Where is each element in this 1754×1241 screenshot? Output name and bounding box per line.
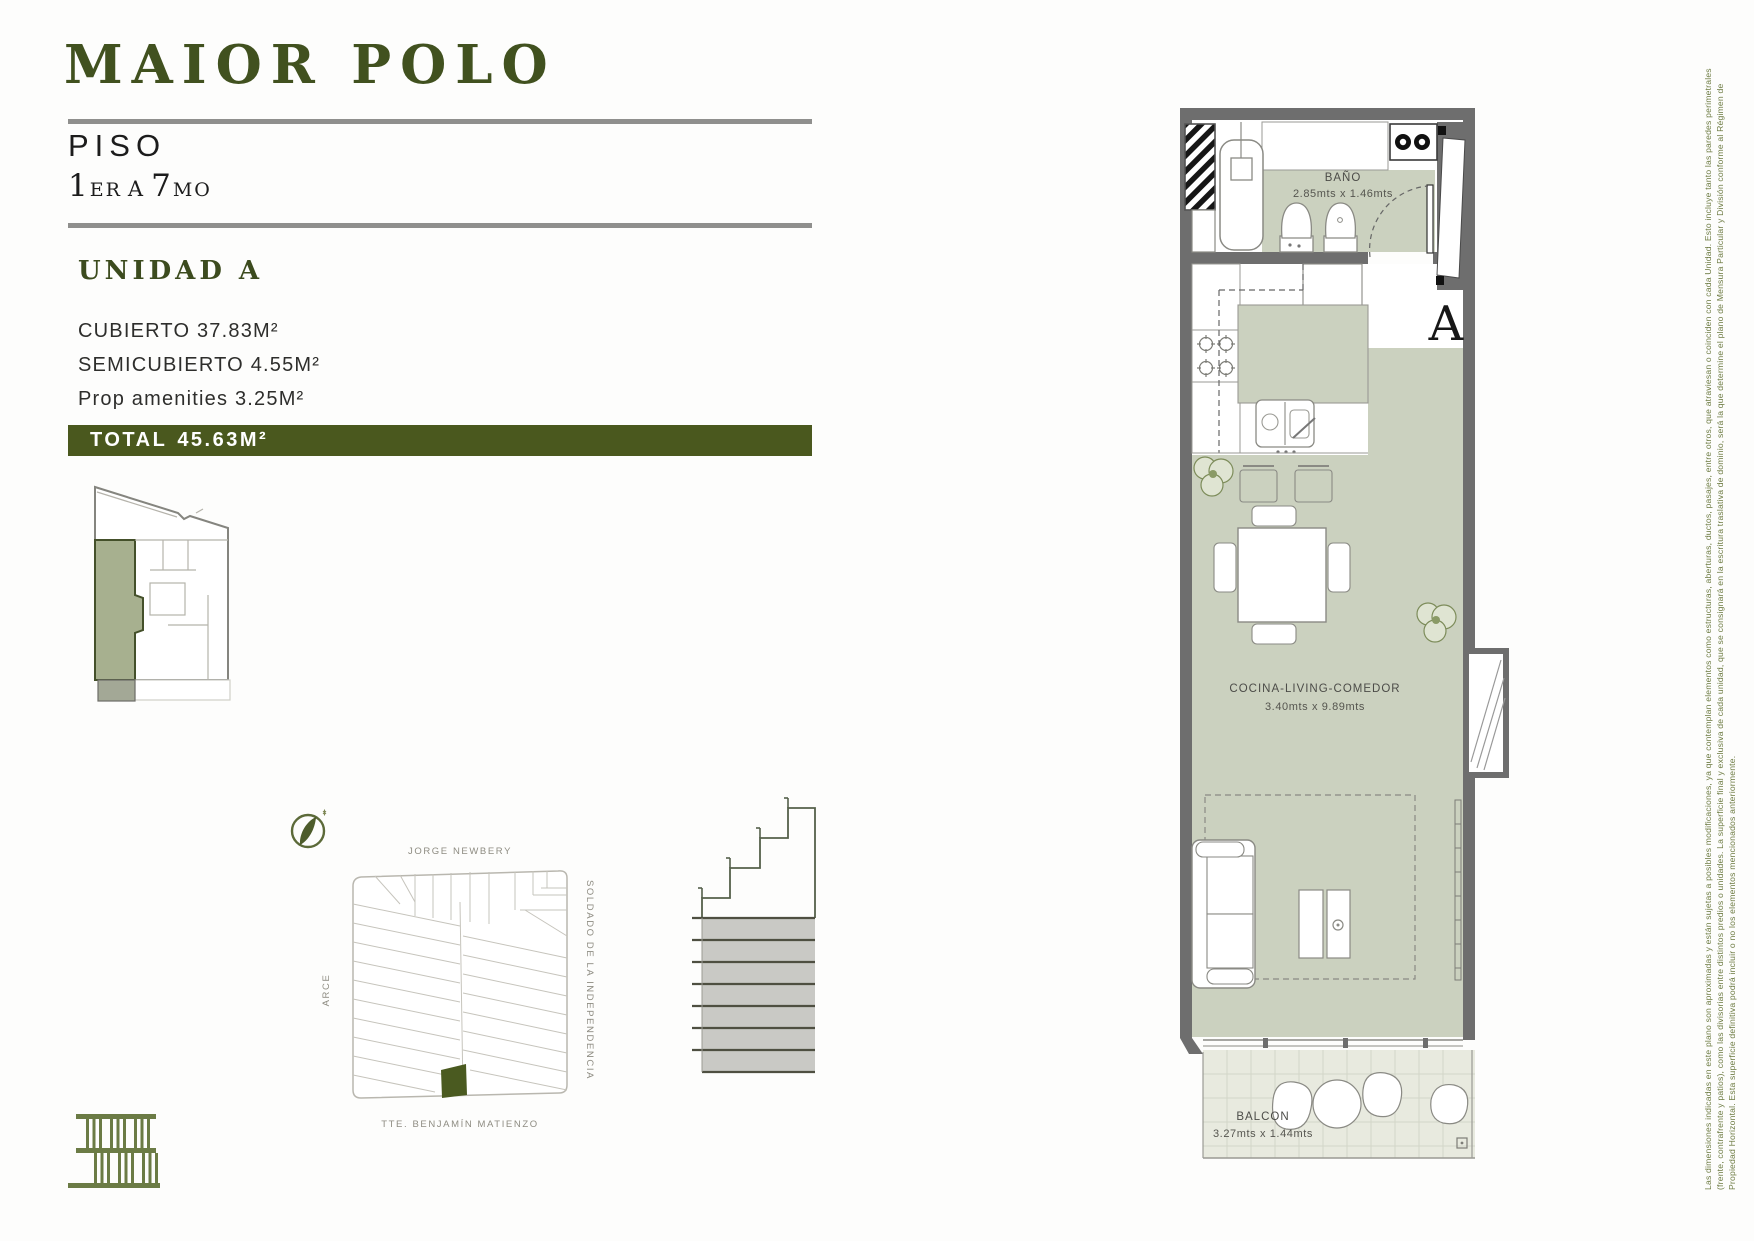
area-label: SEMICUBIERTO: [78, 354, 244, 376]
street-bottom-label: TTE. BENJAMÍN MATIENZO: [381, 1119, 538, 1130]
balcony-label: BALCON: [1236, 1111, 1289, 1123]
kitchen-sink: [1256, 400, 1315, 454]
building-section-diagram: [640, 780, 825, 1080]
legal-disclaimer: Las dimensiones indicadas en este plano …: [1702, 42, 1739, 1190]
area-value: 3.25M²: [235, 388, 304, 410]
wall-left: [1180, 108, 1192, 1038]
toilet: [1280, 203, 1313, 252]
floor-from-number: 1: [68, 168, 90, 204]
key-plan-diagram: [78, 473, 253, 718]
plan-sheet: MAIOR POLO PISO 1ERA7MO UNIDAD A CUBIERT…: [0, 0, 1754, 1241]
bathroom-door-leaf: [1427, 185, 1433, 253]
unit-floor-plan: BAÑO 2.85mts x 1.46mts A: [1175, 100, 1520, 1175]
parapet-ticks: [698, 798, 788, 898]
key-plan-unit-balcony: [98, 680, 135, 701]
floor-range: 1ERA7MO: [68, 168, 212, 204]
shaft-hatch: [1185, 124, 1215, 210]
wall-left-bevel: [1180, 1038, 1203, 1054]
floor-to-number: 7: [151, 168, 173, 204]
bathroom-dims: 2.85mts x 1.46mts: [1293, 188, 1393, 200]
unit-letter: A: [1428, 296, 1465, 352]
wall-right-lower: [1463, 778, 1475, 1040]
brand-logo: [64, 1112, 168, 1196]
bathroom-label: BAÑO: [1325, 171, 1362, 184]
floor-label: PISO: [68, 128, 166, 164]
area-row-cubierto: CUBIERTO 37.83M²: [78, 320, 279, 343]
balcony-chair: [1431, 1085, 1468, 1124]
street-top-label: JORGE NEWBERY: [408, 846, 512, 857]
area-row-amenities: Prop amenities 3.25M²: [78, 388, 304, 411]
balcony-table: [1313, 1080, 1361, 1128]
total-label: TOTAL: [90, 429, 167, 452]
bidet: [1324, 203, 1357, 252]
logo-row-2: [94, 1153, 158, 1183]
dining-chair: [1252, 624, 1296, 644]
street-left-label: ARCE: [321, 974, 332, 1007]
section-setback-profile: [702, 808, 815, 918]
floor-from-suffix: ER: [90, 179, 122, 201]
sofa: [1192, 840, 1255, 988]
area-row-semicubierto: SEMICUBIERTO 4.55M²: [78, 354, 320, 377]
divider-bottom: [68, 223, 812, 228]
wall-top: [1180, 108, 1475, 120]
location-map: JORGE NEWBERY ARCE SOLDADO DE LA INDEPEN…: [315, 840, 610, 1140]
area-value: 37.83M²: [197, 320, 279, 342]
unit-name: UNIDAD A: [78, 256, 263, 286]
total-value: 45.63M²: [177, 429, 268, 452]
key-plan-highlighted-unit: [95, 540, 143, 680]
street-right-label: SOLDADO DE LA INDEPENDENCIA: [584, 880, 595, 1080]
project-title: MAIOR POLO: [64, 34, 557, 96]
bathroom-counter: [1262, 122, 1388, 170]
balcony-dims: 3.27mts x 1.44mts: [1213, 1128, 1313, 1140]
wall-niche: [1192, 210, 1215, 252]
floor-conjunction: A: [122, 177, 151, 201]
cooktop: [1192, 330, 1240, 382]
living-dims: 3.40mts x 9.89mts: [1265, 701, 1365, 713]
divider-top: [68, 119, 812, 124]
compass-star: [323, 810, 326, 816]
balcony-glass-doors: [1203, 1038, 1463, 1048]
area-label: Prop amenities: [78, 388, 228, 410]
living-label: COCINA-LIVING-COMEDOR: [1229, 683, 1400, 695]
highlighted-parcel: [441, 1064, 467, 1098]
dining-chair: [1252, 506, 1296, 526]
area-label: CUBIERTO: [78, 320, 190, 342]
balcony-chair: [1363, 1073, 1402, 1117]
kitchen-island: [1238, 305, 1368, 403]
total-area-banner: TOTAL 45.63M²: [68, 425, 812, 456]
dining-chair: [1214, 543, 1236, 592]
floor-to-suffix: MO: [173, 179, 212, 201]
dining-table: [1238, 528, 1326, 622]
dining-chair: [1328, 543, 1350, 592]
area-value: 4.55M²: [251, 354, 320, 376]
wall-bathroom: [1180, 252, 1368, 264]
logo-row-1: [86, 1119, 150, 1148]
